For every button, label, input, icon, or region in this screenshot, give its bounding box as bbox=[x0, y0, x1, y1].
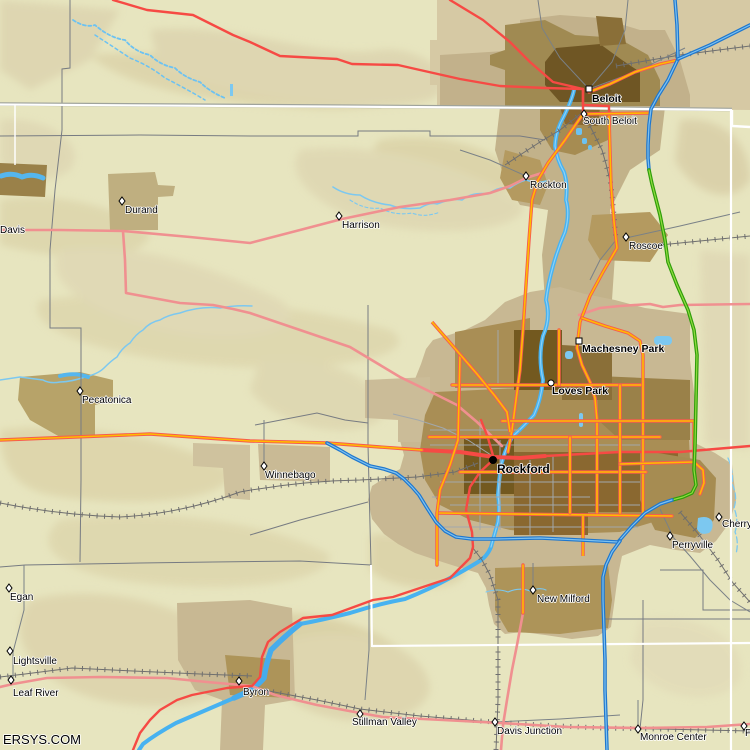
svg-text:ERSYS.COM: ERSYS.COM bbox=[3, 732, 81, 747]
svg-text:Lightsville: Lightsville bbox=[13, 656, 57, 667]
svg-text:Loves Park: Loves Park bbox=[552, 385, 608, 397]
svg-text:South Beloit: South Beloit bbox=[583, 116, 637, 127]
svg-text:Rockton: Rockton bbox=[530, 180, 567, 191]
svg-text:F: F bbox=[745, 728, 750, 739]
svg-text:Durand: Durand bbox=[125, 205, 158, 216]
svg-text:Roscoe: Roscoe bbox=[629, 241, 663, 252]
svg-text:Monroe Center: Monroe Center bbox=[640, 732, 707, 743]
svg-text:Machesney Park: Machesney Park bbox=[582, 343, 664, 355]
svg-text:Winnebago: Winnebago bbox=[265, 470, 316, 481]
svg-text:Leaf River: Leaf River bbox=[13, 688, 59, 699]
svg-text:Perryville: Perryville bbox=[672, 540, 714, 551]
svg-text:New Milford: New Milford bbox=[537, 594, 590, 605]
svg-text:Pecatonica: Pecatonica bbox=[82, 395, 132, 406]
svg-text:Cherry: Cherry bbox=[722, 519, 750, 530]
svg-text:Byron: Byron bbox=[243, 687, 269, 698]
svg-text:Davis Junction: Davis Junction bbox=[497, 726, 562, 737]
svg-text:Harrison: Harrison bbox=[342, 220, 380, 231]
svg-text:Beloit: Beloit bbox=[592, 93, 622, 105]
svg-text:Egan: Egan bbox=[10, 592, 33, 603]
svg-text:Davis: Davis bbox=[0, 225, 25, 236]
svg-text:Stillman Valley: Stillman Valley bbox=[352, 717, 417, 728]
svg-text:Rockford: Rockford bbox=[497, 462, 550, 476]
